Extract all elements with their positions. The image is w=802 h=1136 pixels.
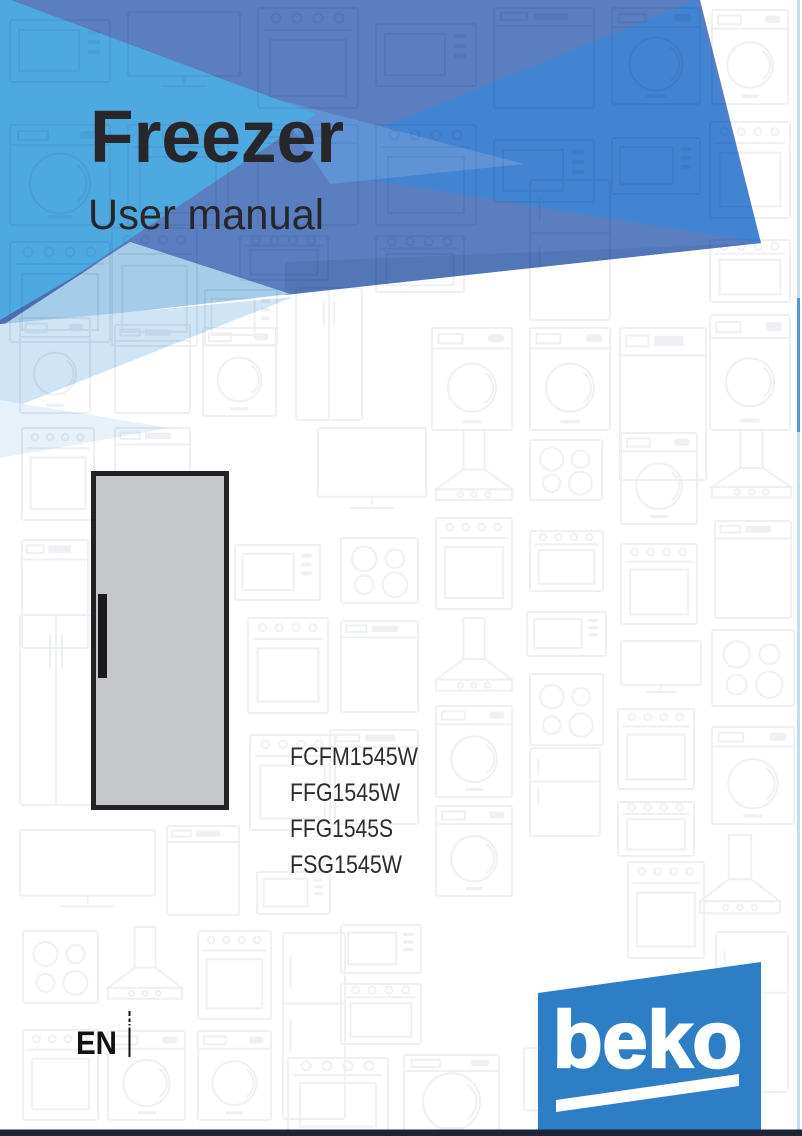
- svg-text:EN: EN: [76, 1025, 117, 1061]
- svg-text:FFG1545W: FFG1545W: [290, 779, 400, 807]
- svg-text:beko: beko: [553, 995, 742, 1084]
- svg-text:FSG1545W: FSG1545W: [290, 851, 402, 879]
- svg-text:Freezer: Freezer: [90, 95, 344, 178]
- svg-text:FFG1545S: FFG1545S: [290, 815, 393, 843]
- svg-text:User manual: User manual: [88, 191, 324, 239]
- svg-text:FCFM1545W: FCFM1545W: [290, 743, 418, 771]
